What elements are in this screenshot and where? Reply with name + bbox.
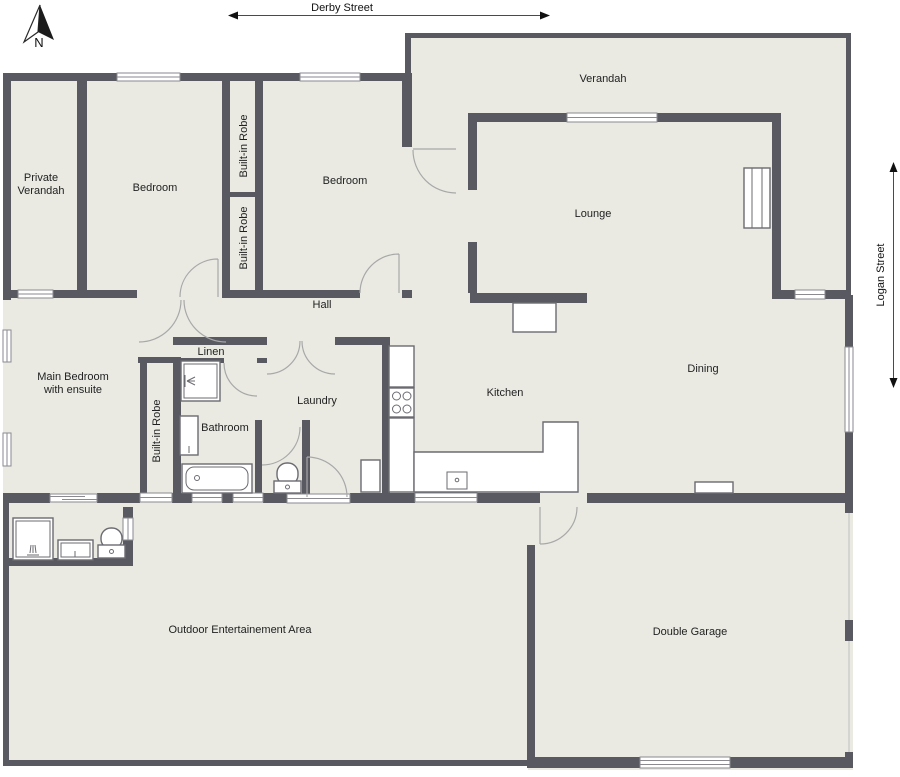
pantry-bench-icon xyxy=(513,303,556,332)
wall-segment xyxy=(468,113,477,190)
street-label-logan: Logan Street xyxy=(875,244,887,307)
wall-segment xyxy=(173,337,267,345)
wall-segment xyxy=(230,192,255,197)
wall-segment xyxy=(3,73,117,81)
wall-segment xyxy=(97,493,140,503)
room-label-outdoor-area: Outdoor Entertainement Area xyxy=(168,624,312,636)
wall-segment xyxy=(405,33,851,38)
wall-segment xyxy=(140,357,147,493)
room-label-dining: Dining xyxy=(687,363,718,375)
logan-street-indicator: Logan Street xyxy=(875,162,898,388)
wall-segment xyxy=(468,242,477,293)
room-label-kitchen: Kitchen xyxy=(487,387,524,399)
wall-segment xyxy=(3,493,50,503)
wall-segment xyxy=(180,73,300,81)
room-label-robe-lower: Built-in Robe xyxy=(238,207,250,270)
arrow-down-icon xyxy=(890,378,898,388)
shower-icon xyxy=(13,518,53,560)
window xyxy=(192,493,222,502)
derby-street-indicator: Derby Street xyxy=(228,2,550,20)
wall-segment xyxy=(846,33,851,295)
wall-segment xyxy=(335,337,390,345)
room-label-private-verandah: Private xyxy=(24,172,58,184)
bathtub-icon xyxy=(182,464,252,493)
window xyxy=(3,433,11,466)
wall-segment xyxy=(527,757,640,768)
room-label-laundry: Laundry xyxy=(297,395,337,407)
street-label-derby: Derby Street xyxy=(311,2,373,14)
wall-segment xyxy=(3,500,9,766)
wall-segment xyxy=(172,493,192,503)
wall-segment xyxy=(657,113,780,122)
window xyxy=(300,73,360,81)
wall-segment xyxy=(53,290,137,298)
wall-segment xyxy=(845,493,853,513)
wall-segment xyxy=(302,420,310,500)
window xyxy=(3,330,11,362)
wall-segment xyxy=(402,290,412,298)
wall-segment xyxy=(3,760,530,766)
room-label-private-verandah-2: Verandah xyxy=(17,185,64,197)
window xyxy=(140,493,172,502)
arrow-up-icon xyxy=(890,162,898,172)
wall-segment xyxy=(255,420,262,500)
window xyxy=(233,493,263,502)
toilet-icon xyxy=(274,463,301,493)
heater-icon xyxy=(695,482,733,493)
wall-segment xyxy=(360,73,405,81)
vanity-icon xyxy=(58,540,93,560)
wall-segment xyxy=(845,295,853,347)
wall-segment xyxy=(263,493,287,503)
wall-segment xyxy=(772,290,795,299)
north-letter: N xyxy=(34,35,43,50)
room-label-verandah: Verandah xyxy=(579,73,626,85)
wall-segment xyxy=(845,432,853,500)
window xyxy=(117,73,180,81)
wall-segment xyxy=(3,73,11,300)
room-label-bedroom-middle: Bedroom xyxy=(323,175,368,187)
room-label-robe-main: Built-in Robe xyxy=(151,400,163,463)
north-arrow-icon: N xyxy=(24,5,54,50)
wall-segment xyxy=(527,545,535,765)
wall-segment xyxy=(77,81,87,290)
window xyxy=(795,290,825,299)
room-label-robe-upper: Built-in Robe xyxy=(238,115,250,178)
wall-segment xyxy=(405,38,411,73)
wall-segment xyxy=(730,757,845,768)
room-label-bathroom: Bathroom xyxy=(201,422,249,434)
sliding-door xyxy=(50,494,97,502)
wall-segment xyxy=(255,81,263,298)
wall-segment xyxy=(587,493,845,503)
floorplan-page: Private Verandah Bedroom Bedroom Built-i… xyxy=(0,0,900,772)
fireplace-icon xyxy=(744,168,770,228)
wall-segment xyxy=(222,81,230,298)
floorplan-drawing: Private Verandah Bedroom Bedroom Built-i… xyxy=(0,0,900,772)
floor-areas xyxy=(3,33,853,770)
wall-segment xyxy=(123,507,133,518)
wall-segment xyxy=(845,752,853,768)
garage-door xyxy=(640,757,730,768)
room-label-main-bedroom-2: with ensuite xyxy=(43,384,102,396)
wall-segment xyxy=(350,493,415,503)
door-threshold xyxy=(287,494,350,503)
room-label-linen: Linen xyxy=(198,346,225,358)
window xyxy=(567,113,657,122)
floor-verandah xyxy=(405,33,851,75)
room-label-main-bedroom: Main Bedroom xyxy=(37,371,109,383)
wall-segment xyxy=(845,620,853,641)
window xyxy=(123,518,133,540)
toilet-icon xyxy=(98,528,125,558)
wall-segment xyxy=(222,493,233,503)
room-label-bedroom-front: Bedroom xyxy=(133,182,178,194)
window xyxy=(415,493,477,502)
window xyxy=(845,347,853,432)
wall-segment xyxy=(477,493,540,503)
arrow-left-icon xyxy=(228,12,238,20)
room-label-lounge: Lounge xyxy=(575,208,612,220)
kitchen-cabinet-icon xyxy=(389,418,414,492)
arrow-right-icon xyxy=(540,12,550,20)
wall-segment xyxy=(3,290,18,298)
wall-segment xyxy=(257,358,267,363)
kitchen-cabinet-icon xyxy=(389,346,414,387)
wall-segment xyxy=(470,293,587,303)
window xyxy=(18,290,53,298)
wall-segment xyxy=(468,113,567,122)
room-label-garage: Double Garage xyxy=(653,626,728,638)
shower-icon xyxy=(181,361,220,401)
vanity-icon xyxy=(180,416,198,455)
stove-icon xyxy=(389,388,414,417)
room-label-hall: Hall xyxy=(313,299,332,311)
wall-segment xyxy=(228,290,360,298)
washer-icon xyxy=(361,460,380,492)
wall-segment xyxy=(402,73,412,147)
wall-segment xyxy=(772,113,781,293)
